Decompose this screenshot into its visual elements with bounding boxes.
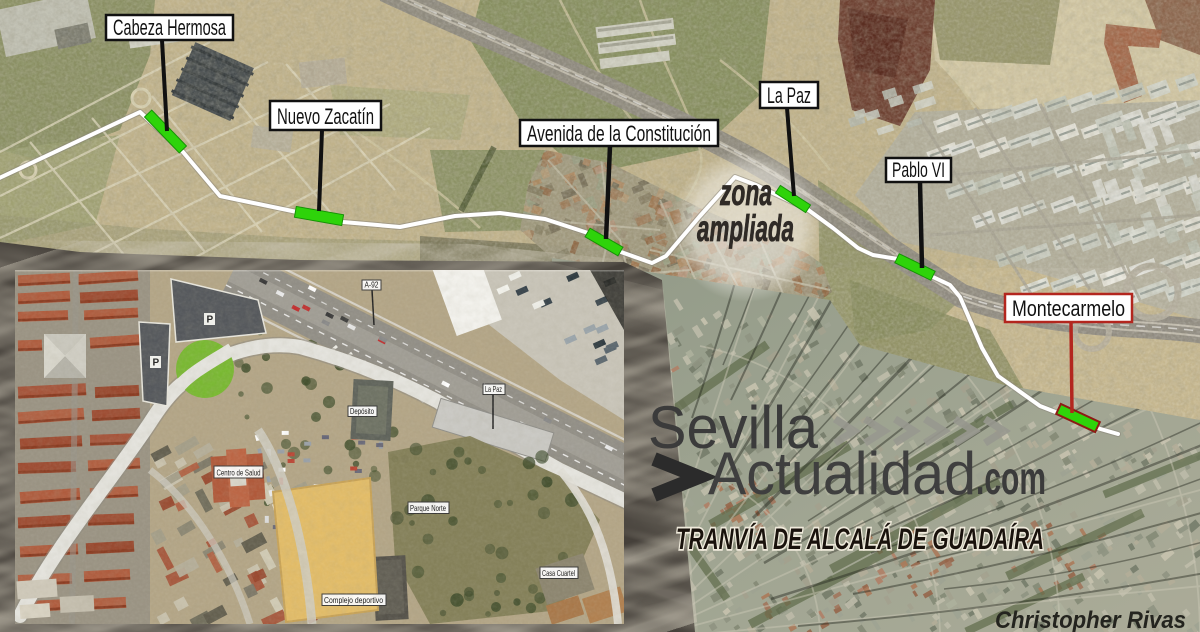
svg-text:TRANVÍA DE ALCALÁ DE GUADAÍRA: TRANVÍA DE ALCALÁ DE GUADAÍRA (676, 522, 1044, 556)
svg-text:.com: .com (976, 452, 1046, 504)
svg-text:Actualidad: Actualidad (708, 440, 976, 507)
svg-text:Christopher Rivas: Christopher Rivas (995, 607, 1186, 632)
svg-text:Pablo VI: Pablo VI (892, 159, 945, 182)
svg-text:zona: zona (719, 172, 772, 213)
svg-text:Nuevo Zacatín: Nuevo Zacatín (277, 104, 374, 129)
svg-text:ampliada: ampliada (697, 208, 794, 249)
svg-text:Cabeza Hermosa: Cabeza Hermosa (113, 15, 227, 40)
svg-text:Avenida de la Constitución: Avenida de la Constitución (527, 121, 711, 146)
svg-text:Montecarmelo: Montecarmelo (1012, 296, 1125, 321)
svg-text:La Paz: La Paz (767, 83, 811, 108)
